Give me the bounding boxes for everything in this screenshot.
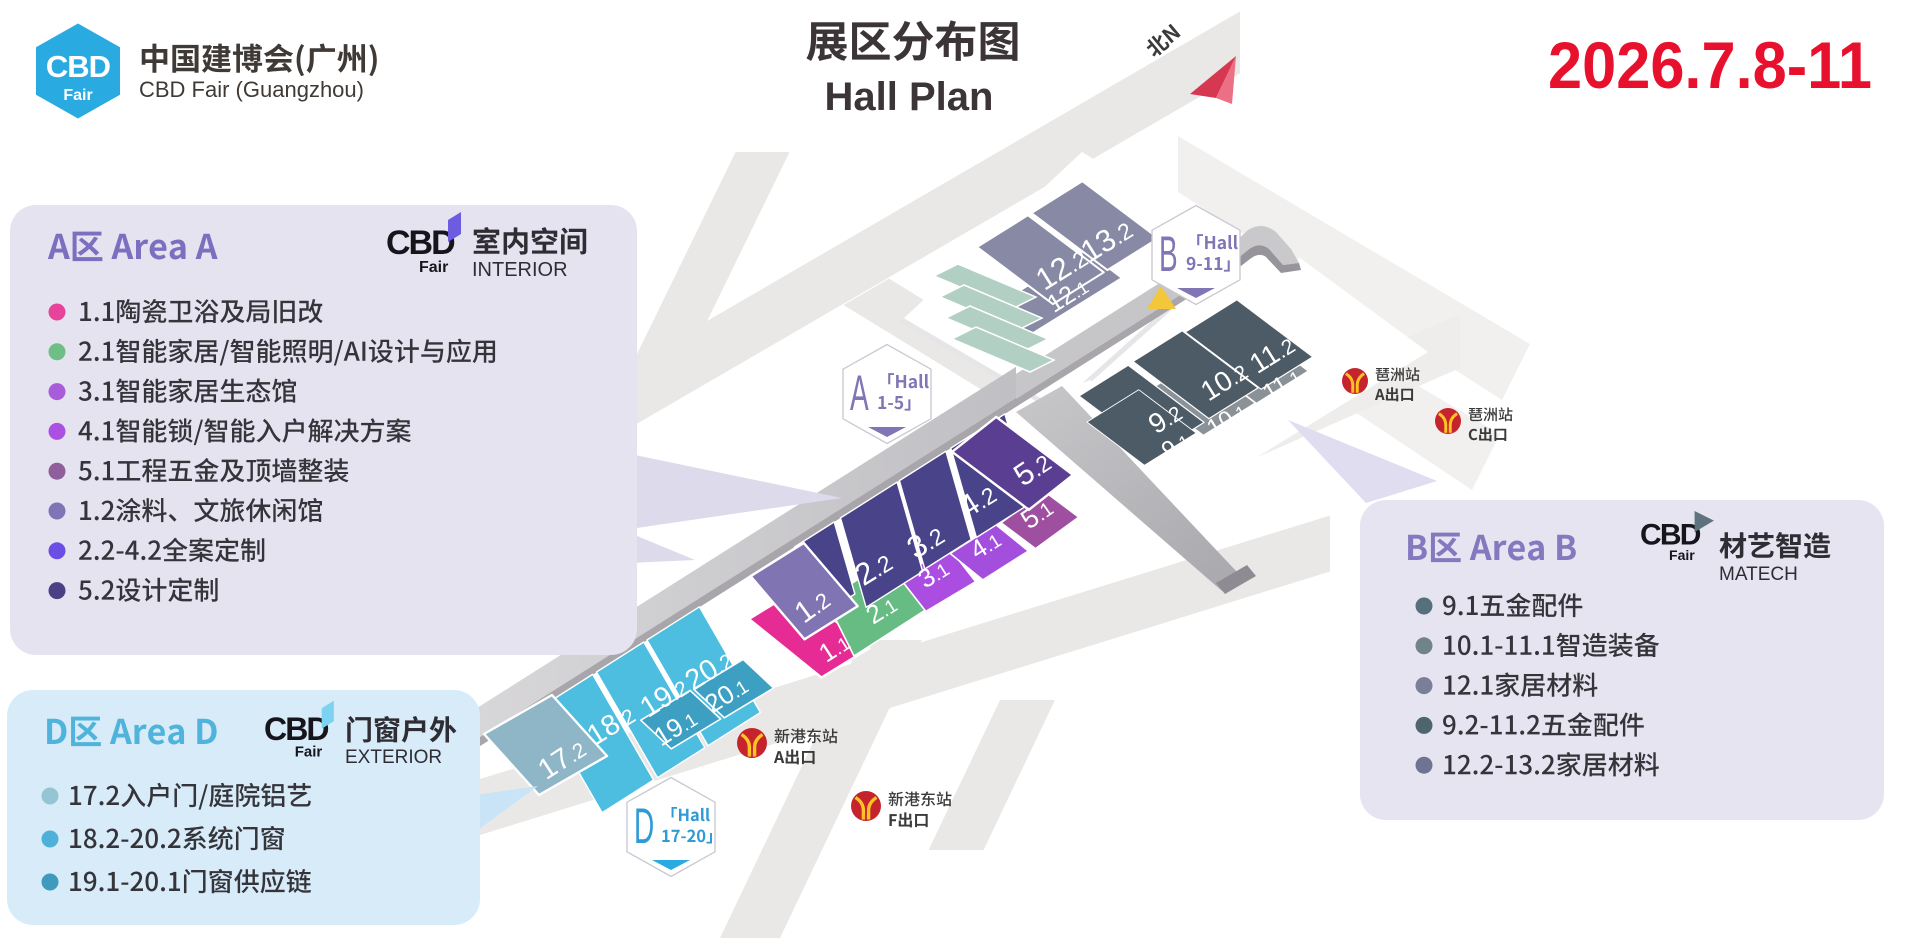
svg-text:Fair: Fair bbox=[63, 87, 92, 104]
svg-text:B: B bbox=[1159, 225, 1178, 282]
svg-text:Fair: Fair bbox=[1669, 547, 1695, 563]
svg-text:CBD Fair (Guangzhou): CBD Fair (Guangzhou) bbox=[139, 77, 364, 102]
svg-text:EXTERIOR: EXTERIOR bbox=[345, 747, 442, 768]
svg-text:CBD: CBD bbox=[264, 711, 328, 747]
svg-text:MATECH: MATECH bbox=[1719, 564, 1798, 585]
svg-text:Fair: Fair bbox=[295, 744, 323, 761]
svg-text:CBD: CBD bbox=[386, 224, 455, 262]
svg-text:Hall Plan: Hall Plan bbox=[825, 75, 994, 119]
svg-text:D: D bbox=[634, 797, 654, 854]
svg-text:Fair: Fair bbox=[419, 259, 448, 276]
svg-text:2026.7.8-11: 2026.7.8-11 bbox=[1548, 28, 1872, 102]
svg-text:INTERIOR: INTERIOR bbox=[472, 259, 568, 281]
svg-text:CBD: CBD bbox=[46, 49, 111, 84]
svg-text:A: A bbox=[850, 364, 869, 421]
